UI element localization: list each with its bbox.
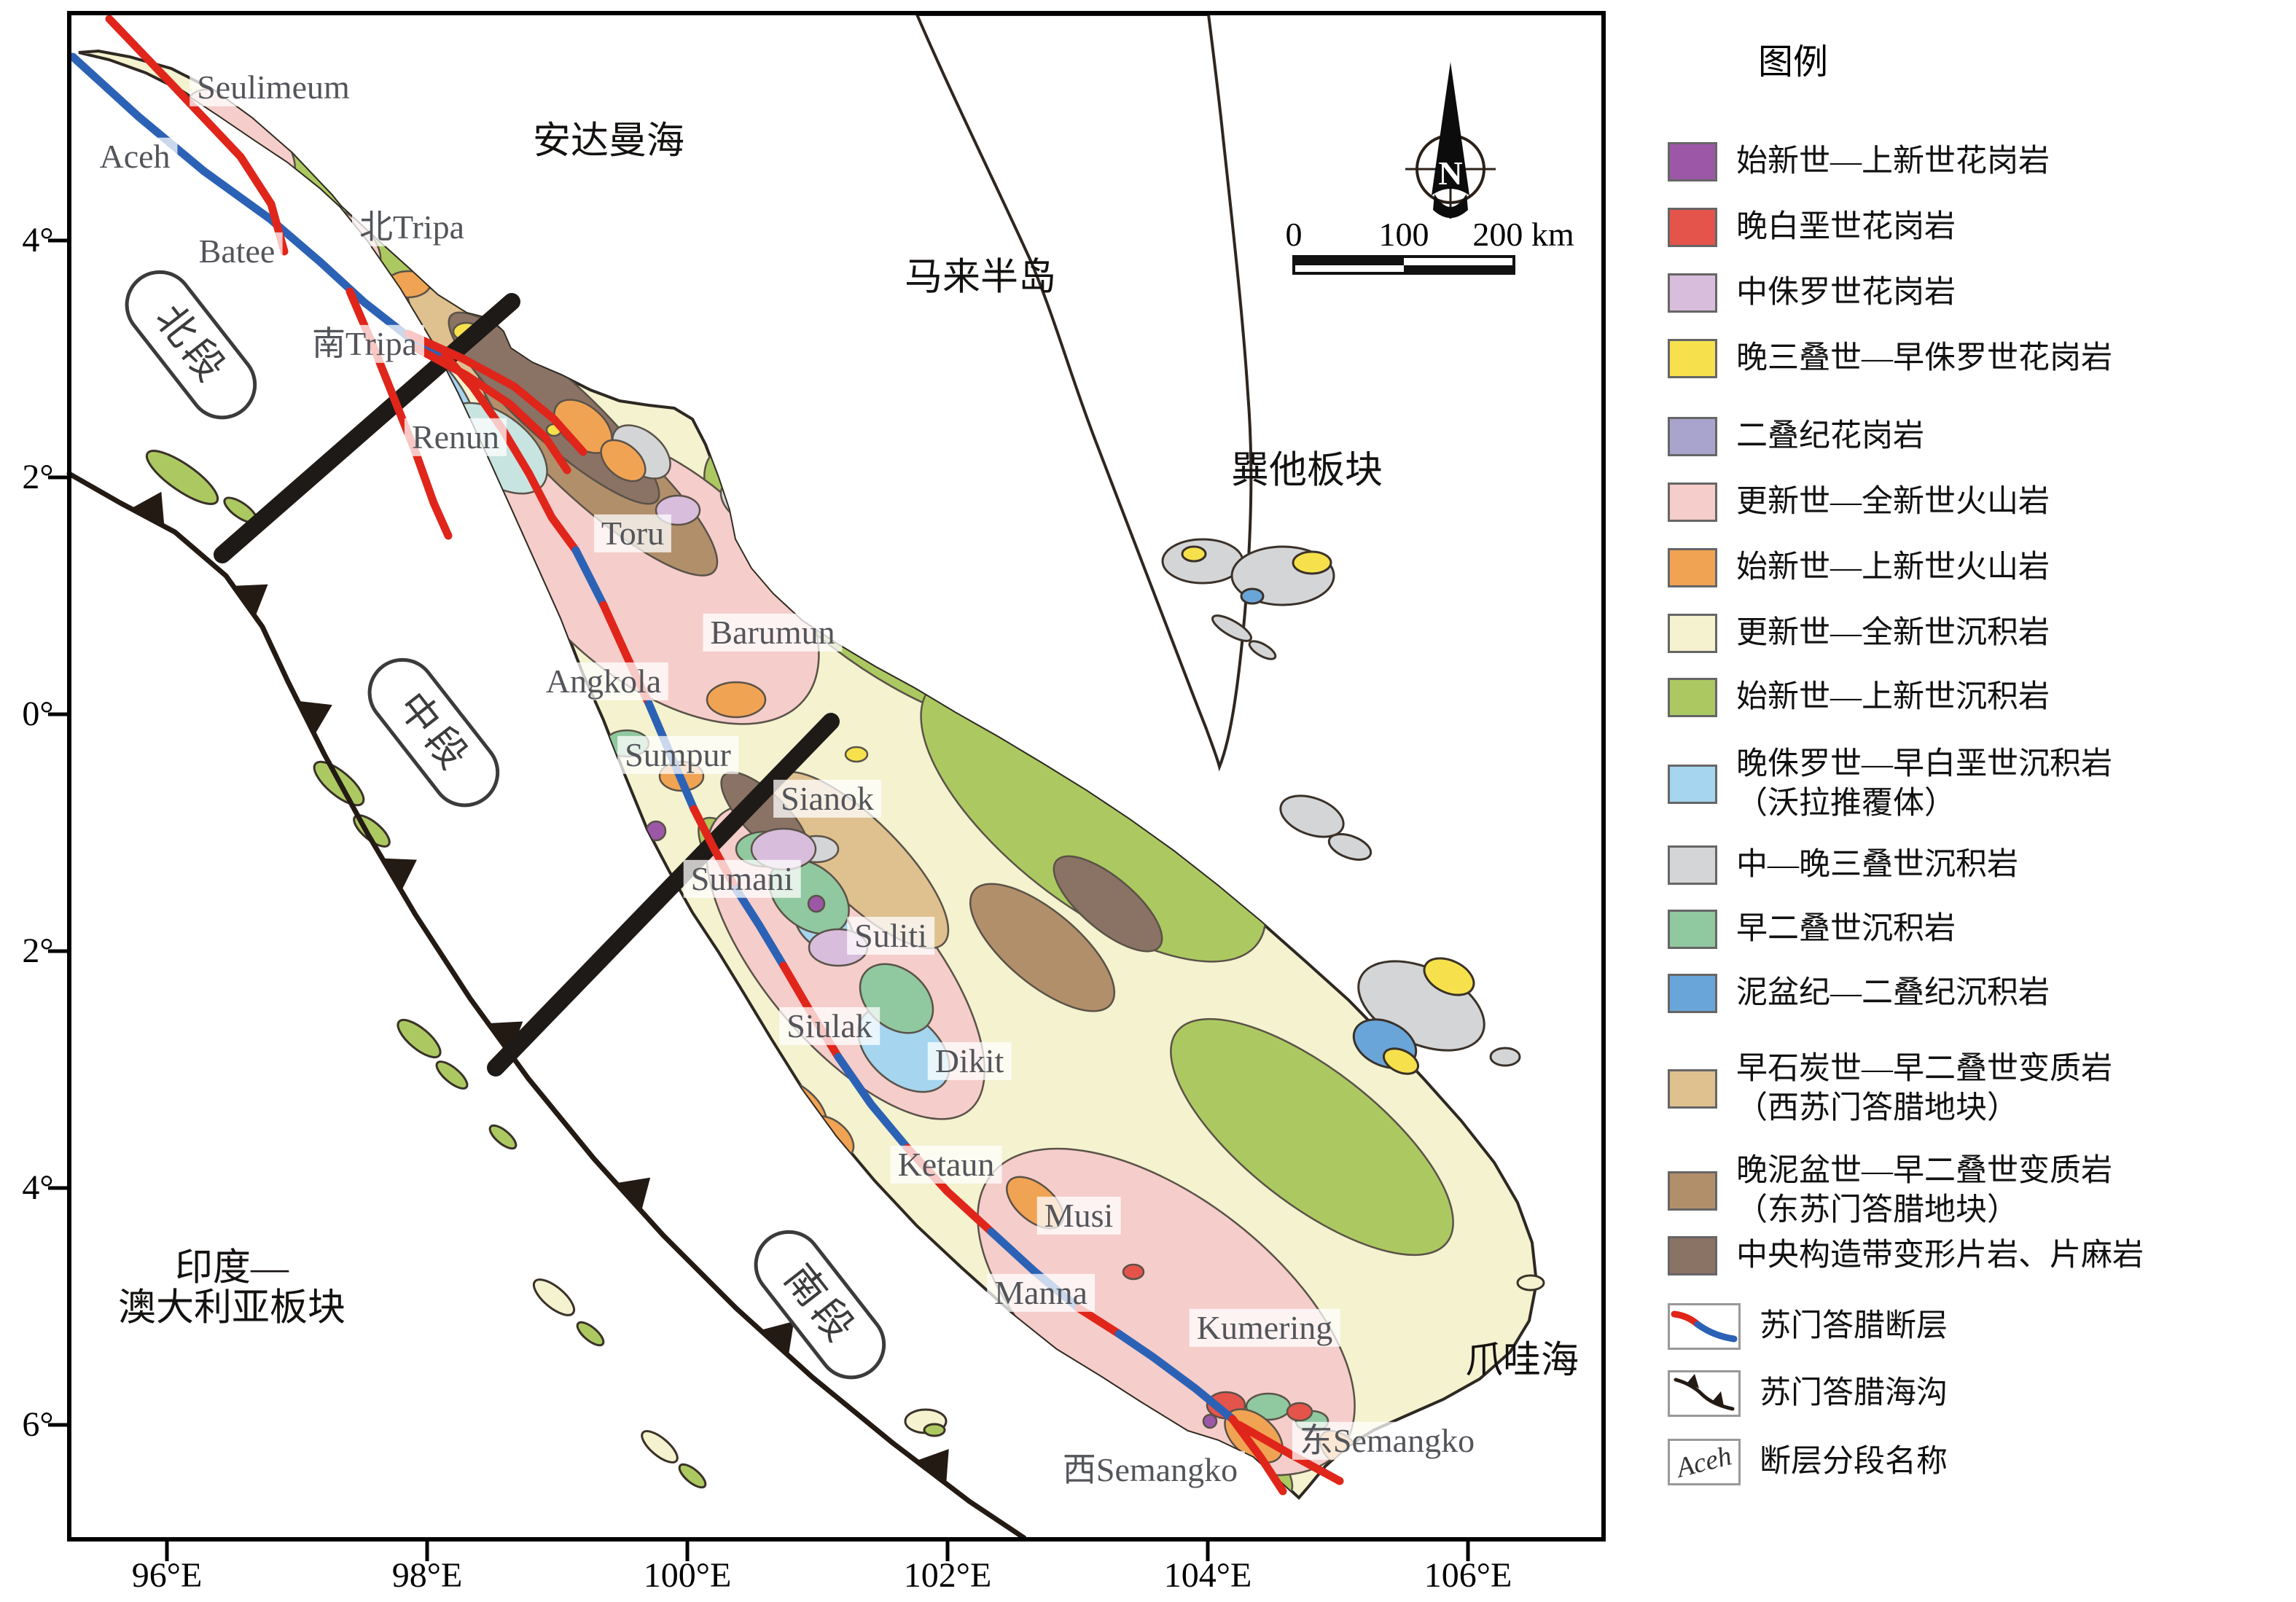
- legend-item: 二叠纪花岗岩: [1668, 417, 1924, 456]
- legend-swatch: [1668, 548, 1717, 587]
- legend-item: 始新世—上新世火山岩: [1668, 548, 2050, 587]
- legend-item: 中央构造带变形片岩、片麻岩: [1668, 1236, 2144, 1275]
- legend-swatch: [1668, 845, 1717, 885]
- figure-root: SeulimeumAcehBatee北Tripa南TripaRenunToruB…: [0, 0, 2296, 1602]
- legend-item: 晚白垩世花岗岩: [1668, 208, 1956, 247]
- legend-label: 晚泥盆世—早二叠世变质岩（东苏门答腊地块）: [1736, 1152, 2112, 1230]
- legend-label: 晚侏罗世—早白垩世沉积岩（沃拉推覆体）: [1736, 745, 2112, 824]
- fault-segment-label-Seulimeum: Seulimeum: [190, 69, 357, 106]
- legend-item: 晚三叠世—早侏罗世花岗岩: [1668, 339, 2112, 378]
- fault-segment-label-南Tripa: 南Tripa: [305, 325, 424, 363]
- fault-segment-label-Sumani: Sumani: [684, 860, 801, 898]
- scalebar-label: 200 km: [1472, 217, 1574, 252]
- fault-segment-label-Ketaun: Ketaun: [891, 1146, 1002, 1184]
- fault-segment-label-Toru: Toru: [594, 515, 671, 552]
- legend-swatch: [1668, 417, 1717, 456]
- legend-item: 中侏罗世花岗岩: [1668, 273, 1956, 313]
- legend-label: 泥盆纪—二叠纪沉积岩: [1736, 974, 2050, 1013]
- legend-swatch: [1668, 765, 1717, 804]
- legend-swatch: [1668, 339, 1717, 378]
- legend-label: 始新世—上新世火山岩: [1736, 548, 2050, 587]
- fault-segment-label-北Tripa: 北Tripa: [352, 208, 472, 246]
- region-label: 印度—澳大利亚板块: [118, 1249, 345, 1328]
- legend-item: Aceh断层分段名称: [1668, 1439, 1948, 1485]
- legend-label: 苏门答腊海沟: [1760, 1374, 1948, 1413]
- legend-label: 始新世—上新世沉积岩: [1736, 678, 2050, 717]
- legend-swatch: [1668, 208, 1717, 247]
- legend-swatch: [1668, 678, 1717, 717]
- legend-swatch: [1668, 1236, 1717, 1275]
- fault-segment-label-Manna: Manna: [987, 1274, 1095, 1312]
- fault-segment-label-Angkola: Angkola: [539, 663, 668, 700]
- x-axis-label: 100°E: [644, 1558, 732, 1594]
- scale-bar: [1294, 257, 1514, 273]
- x-axis-label: 96°E: [132, 1558, 203, 1594]
- legend-label: 二叠纪花岗岩: [1736, 417, 1924, 456]
- legend-swatch: [1668, 482, 1717, 522]
- legend-item: 中—晚三叠世沉积岩: [1668, 845, 2018, 885]
- fault-segment-label-Sumpur: Sumpur: [617, 736, 738, 774]
- legend-label: 晚三叠世—早侏罗世花岗岩: [1736, 339, 2112, 378]
- fault-segment-label-Sianok: Sianok: [773, 780, 881, 818]
- y-axis-label: 2°: [22, 459, 53, 496]
- legend-symbol-trench: [1668, 1370, 1741, 1417]
- legend-symbol-fault: [1668, 1303, 1741, 1350]
- legend-label: 早二叠世沉积岩: [1736, 910, 1956, 949]
- legend-label: 始新世—上新世花岗岩: [1736, 142, 2050, 181]
- legend-swatch: [1668, 614, 1717, 653]
- fault-segment-label-东Semangko: 东Semangko: [1292, 1422, 1482, 1460]
- x-axis-label: 98°E: [392, 1558, 463, 1594]
- legend-title: 图例: [1735, 33, 1851, 84]
- scalebar-label: 100: [1379, 217, 1429, 252]
- legend-item: 晚侏罗世—早白垩世沉积岩（沃拉推覆体）: [1668, 745, 2112, 824]
- legend-item: 苏门答腊海沟: [1668, 1370, 1948, 1417]
- legend-label: 早石炭世—早二叠世变质岩（西苏门答腊地块）: [1736, 1050, 2112, 1128]
- fault-segment-label-Barumun: Barumun: [703, 614, 842, 652]
- legend-label: 断层分段名称: [1760, 1442, 1948, 1482]
- x-axis-label: 104°E: [1164, 1558, 1252, 1594]
- legend-symbol-name: Aceh: [1668, 1439, 1741, 1485]
- legend-swatch: [1668, 1069, 1717, 1109]
- fault-segment-label-西Semangko: 西Semangko: [1055, 1451, 1245, 1489]
- scalebar-label: 0: [1286, 217, 1303, 252]
- legend-item: 泥盆纪—二叠纪沉积岩: [1668, 974, 2050, 1013]
- legend-swatch: [1668, 974, 1717, 1013]
- legend-item: 早石炭世—早二叠世变质岩（西苏门答腊地块）: [1668, 1050, 2112, 1128]
- y-axis-label: 6°: [22, 1407, 53, 1443]
- fault-segment-label-Batee: Batee: [192, 233, 283, 270]
- legend-swatch: [1668, 910, 1717, 949]
- fault-segment-label-Renun: Renun: [405, 418, 507, 456]
- legend-item: 晚泥盆世—早二叠世变质岩（东苏门答腊地块）: [1668, 1152, 2112, 1230]
- legend-label: 苏门答腊断层: [1760, 1307, 1948, 1346]
- fault-segment-label-Suliti: Suliti: [847, 917, 934, 955]
- legend-item: 更新世—全新世沉积岩: [1668, 614, 2050, 653]
- y-axis-label: 2°: [22, 933, 53, 969]
- fault-segment-label-Dikit: Dikit: [928, 1042, 1012, 1080]
- region-label: 安达曼海: [533, 122, 684, 163]
- y-axis-label: 4°: [22, 222, 53, 259]
- legend-label: 中侏罗世花岗岩: [1736, 273, 1956, 313]
- legend-swatch: [1668, 273, 1717, 313]
- legend-item: 早二叠世沉积岩: [1668, 910, 1956, 949]
- legend-item: 始新世—上新世沉积岩: [1668, 678, 2050, 717]
- fault-segment-label-Siulak: Siulak: [779, 1007, 880, 1045]
- region-label: 爪哇海: [1465, 1342, 1579, 1382]
- x-axis-label: 106°E: [1424, 1558, 1512, 1594]
- x-axis-label: 102°E: [904, 1558, 992, 1594]
- legend-label: 更新世—全新世沉积岩: [1736, 614, 2050, 653]
- y-axis-label: 0°: [22, 696, 53, 732]
- legend-aceh-sample: Aceh: [1674, 1439, 1735, 1484]
- legend-label: 更新世—全新世火山岩: [1736, 482, 2050, 522]
- legend-label: 晚白垩世花岗岩: [1736, 208, 1956, 247]
- legend-swatch: [1668, 1171, 1717, 1211]
- region-label: 马来半岛: [905, 259, 1056, 299]
- y-axis-label: 4°: [22, 1170, 53, 1206]
- fault-segment-label-Kumering: Kumering: [1190, 1309, 1340, 1347]
- fault-segment-label-Musi: Musi: [1037, 1197, 1121, 1235]
- legend-label: 中央构造带变形片岩、片麻岩: [1736, 1236, 2144, 1275]
- north-label: N: [1438, 156, 1462, 191]
- fault-segment-label-Aceh: Aceh: [92, 138, 177, 176]
- legend-item: 更新世—全新世火山岩: [1668, 482, 2050, 522]
- legend-item: 苏门答腊断层: [1668, 1303, 1948, 1350]
- region-label: 巽他板块: [1231, 452, 1383, 492]
- legend-label: 中—晚三叠世沉积岩: [1736, 845, 2018, 885]
- legend-item: 始新世—上新世花岗岩: [1668, 142, 2050, 181]
- legend-swatch: [1668, 142, 1717, 181]
